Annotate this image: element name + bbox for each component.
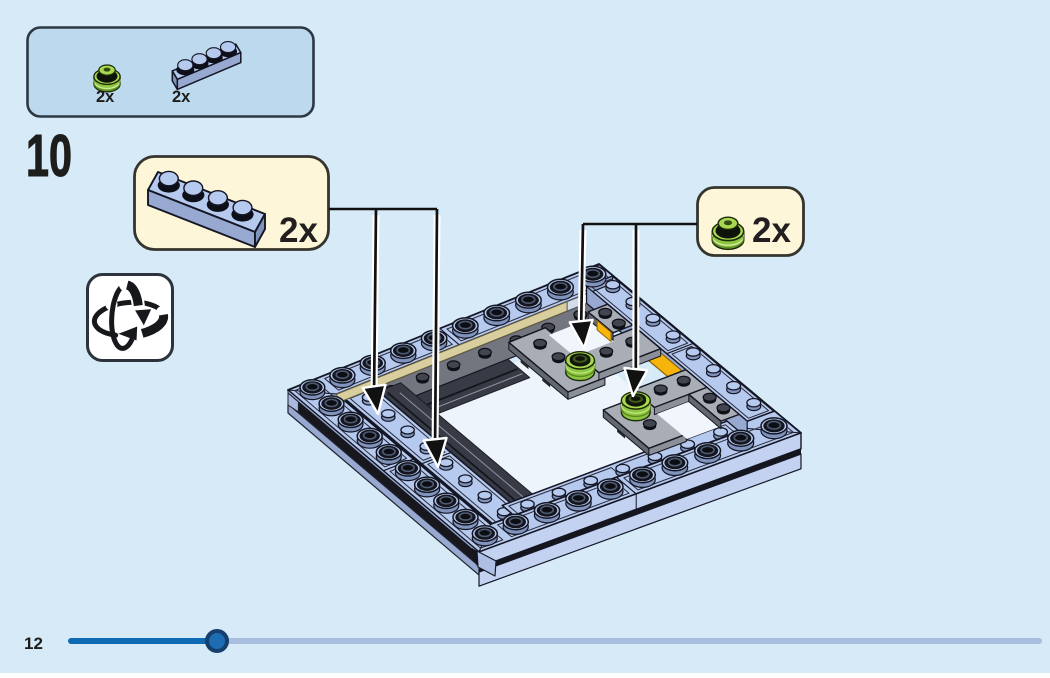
svg-text:2x: 2x <box>752 211 791 250</box>
svg-text:2x: 2x <box>96 88 115 106</box>
svg-text:10: 10 <box>26 123 72 189</box>
svg-text:2x: 2x <box>172 88 191 106</box>
svg-text:2x: 2x <box>279 211 318 250</box>
svg-text:12: 12 <box>24 634 43 653</box>
